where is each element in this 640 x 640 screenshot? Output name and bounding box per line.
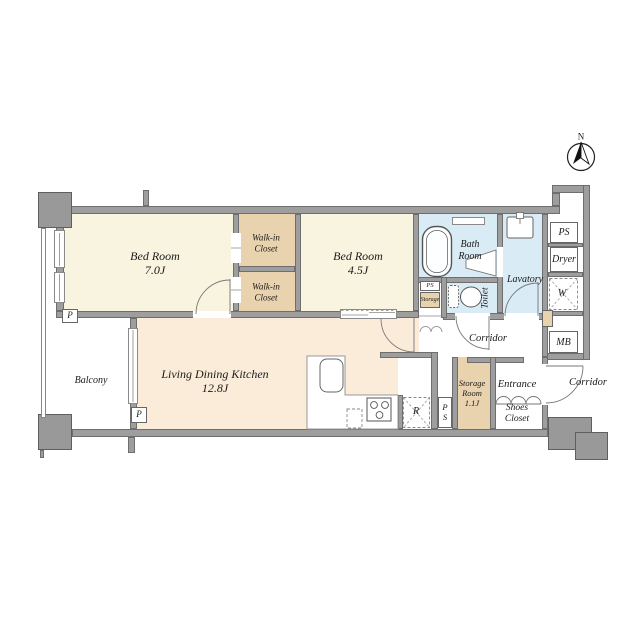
window [54, 230, 65, 268]
window [452, 217, 485, 225]
shoes-line1: Shoes [505, 403, 529, 414]
pipe-shaft-mid-label: P [136, 410, 142, 420]
wall [239, 266, 295, 272]
pillar [575, 432, 608, 460]
door-opening [231, 277, 241, 303]
pillar [38, 192, 72, 228]
wall [552, 193, 560, 206]
balcony-label: Balcony [75, 375, 108, 387]
walkin-closet-lower-label: Walk-in Closet [252, 281, 280, 302]
bedroom-main-name: Bed Room [130, 249, 180, 263]
ps-upper-label: PS [558, 227, 569, 238]
washer-label: W [558, 288, 566, 300]
door-opening [231, 233, 241, 263]
window [340, 309, 397, 319]
shoes-line2: Closet [505, 414, 529, 425]
wic-upper-line2: Closet [252, 243, 280, 254]
wall [295, 214, 301, 311]
bedroom-main-label: Bed Room 7.0J [130, 249, 180, 277]
walkin-closet-upper-label: Walk-in Closet [252, 232, 280, 253]
ps-kitchen-box: PS [438, 397, 452, 428]
wall [441, 277, 447, 318]
wall [452, 357, 458, 429]
compass-circle [568, 144, 595, 171]
ps-upper-box: PS [550, 222, 578, 243]
door-opening [497, 247, 503, 277]
ldk-name: Living Dining Kitchen [161, 367, 268, 381]
storage-room-size: 1.1J [459, 398, 485, 408]
bedroom-second-size: 4.5J [333, 263, 383, 277]
wall-stub [128, 437, 135, 453]
floor-plan: PS Dryer MB PS Storage PS P P [0, 0, 640, 640]
lavatory-floor [503, 214, 542, 313]
ps-mid-box: PS [420, 281, 440, 291]
bedroom-second-label: Bed Room 4.5J [333, 249, 383, 277]
corridor-inner-label: Corridor [469, 333, 507, 345]
storage-room-line1: Storage [459, 378, 485, 388]
door-opening [504, 313, 539, 320]
ldk-label: Living Dining Kitchen 12.8J [161, 367, 268, 395]
bedroom-main-size: 7.0J [130, 263, 180, 277]
dryer-box: Dryer [550, 247, 578, 272]
storage-closet-label: Storage [421, 297, 440, 304]
entrance-label: Entrance [498, 379, 537, 391]
ps-mid-label: PS [426, 282, 433, 289]
pipe-shaft-left-label: P [67, 311, 73, 321]
bath-room-label: Bath Room [458, 239, 481, 263]
window [128, 328, 138, 404]
wall [583, 185, 590, 360]
wall [413, 214, 419, 311]
storage-closet-box: Storage [420, 292, 440, 308]
bedroom-second-name: Bed Room [333, 249, 383, 263]
shaft-mini-box [542, 310, 553, 327]
wall-stub [40, 450, 44, 458]
compass-needle-right [581, 142, 589, 164]
wic-lower-line1: Walk-in [252, 281, 280, 292]
meter-box-label: MB [556, 337, 570, 348]
compass-north-label: N [578, 132, 585, 143]
refrigerator-label: R [413, 406, 419, 418]
lavatory-label: Lavatory [507, 274, 543, 286]
door-opening [542, 364, 548, 405]
pillar [38, 414, 72, 450]
wall [490, 357, 496, 429]
service-strip-base [556, 193, 583, 206]
wall [548, 272, 583, 277]
shoes-closet-label: Shoes Closet [505, 403, 529, 425]
pipe-shaft-mid-box: P [131, 407, 147, 423]
wall [398, 395, 403, 429]
door-opening [193, 311, 231, 318]
balcony-railing [41, 228, 46, 418]
door-opening [455, 313, 490, 320]
wall [431, 352, 438, 429]
ps-kitchen-s: S [443, 413, 447, 422]
wall [72, 429, 548, 437]
ldk-size: 12.8J [161, 381, 268, 395]
wic-upper-line1: Walk-in [252, 232, 280, 243]
window [54, 272, 65, 303]
bath-line1: Bath [458, 239, 481, 251]
balcony-base [44, 318, 130, 429]
meter-box: MB [549, 331, 578, 353]
pipe-shaft-left-box: P [62, 309, 78, 323]
compass-needle-left [573, 142, 581, 164]
wall [380, 352, 438, 358]
storage-room-line2: Room [459, 388, 485, 398]
corridor-outer-label: Corridor [569, 377, 607, 389]
wall [64, 206, 560, 214]
toilet-label: Toilet [480, 287, 491, 308]
wall [548, 311, 583, 316]
wall-stub [143, 190, 149, 206]
dryer-label: Dryer [552, 254, 576, 265]
storage-room-label: Storage Room 1.1J [459, 378, 485, 408]
bath-line2: Room [458, 251, 481, 263]
wic-lower-line2: Closet [252, 292, 280, 303]
